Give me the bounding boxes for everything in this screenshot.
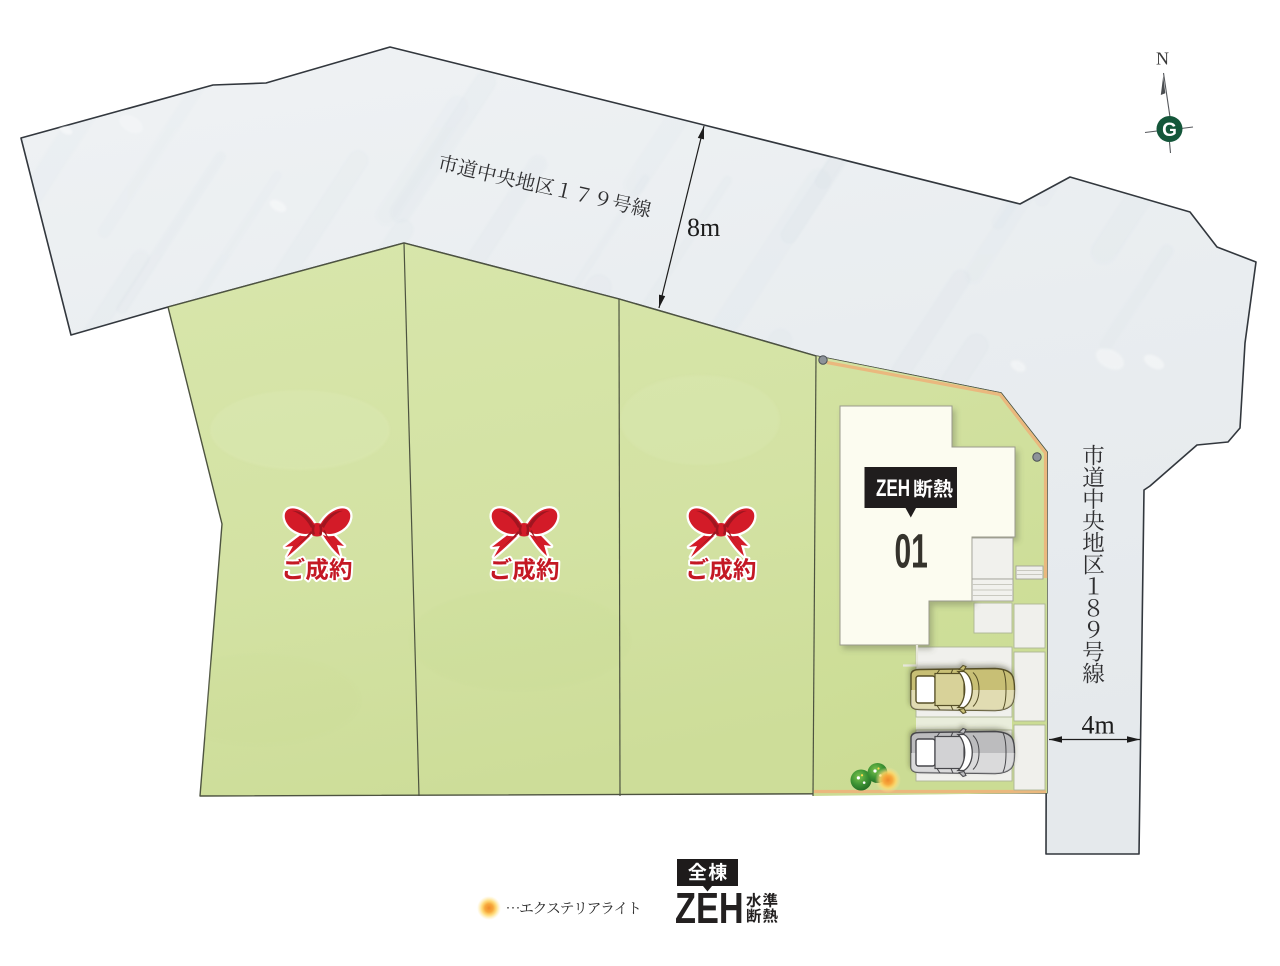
svg-text:N: N: [1156, 49, 1169, 69]
svg-text:ZEH: ZEH: [876, 475, 910, 502]
svg-text:G: G: [1162, 120, 1177, 141]
svg-text:01: 01: [895, 526, 928, 579]
svg-text:ZEH: ZEH: [675, 884, 744, 933]
svg-text:4m: 4m: [1082, 711, 1115, 740]
svg-text:8m: 8m: [687, 213, 720, 242]
